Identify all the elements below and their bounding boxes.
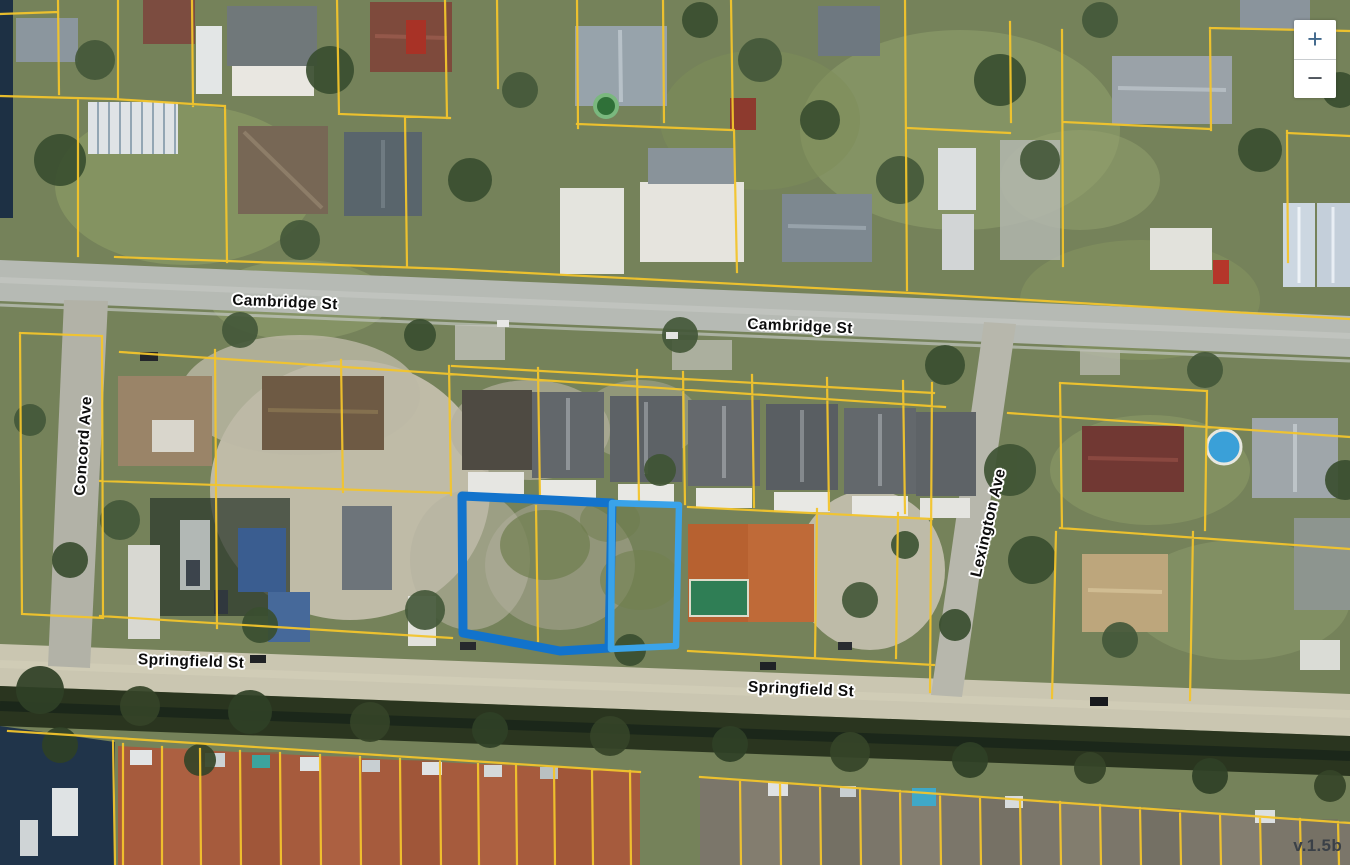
street-label-springfield-west: Springfield St xyxy=(138,651,245,673)
version-label: v.1.5b xyxy=(1293,836,1342,856)
zoom-in-button[interactable]: + xyxy=(1294,20,1336,60)
zoom-control: + − xyxy=(1294,20,1336,98)
map-viewport[interactable]: Cambridge St Cambridge St Concord Ave Le… xyxy=(0,0,1350,865)
aerial-imagery xyxy=(0,0,1350,865)
zoom-out-button[interactable]: − xyxy=(1294,60,1336,99)
